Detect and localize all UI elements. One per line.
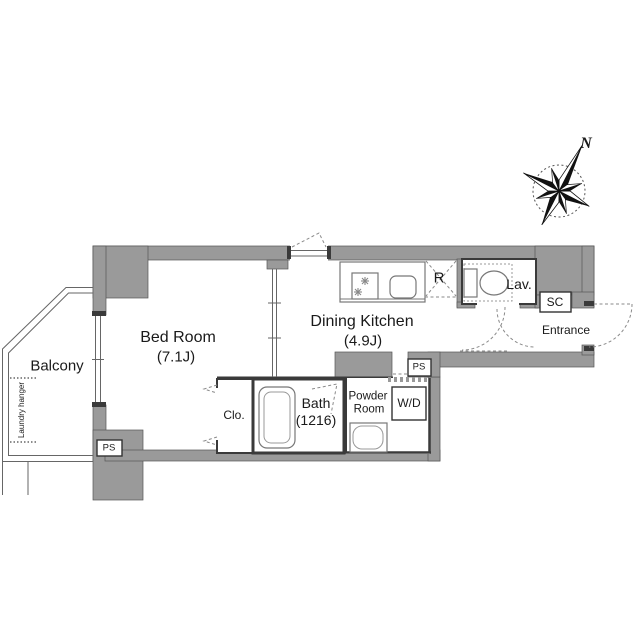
washbasin-icon [350,423,387,452]
entrance-label: Entrance [542,324,590,336]
lavatory-label: Lav. [506,277,531,291]
balcony-label: Balcony [30,359,83,374]
bath-size-label: (1216) [296,413,336,427]
closet-label: Clo. [223,409,244,421]
kitchen-counter [340,262,425,302]
bath-label: Bath [302,396,331,410]
shoe-cabinet-label: SC [547,296,564,308]
burner-icon [354,288,362,296]
sink-icon [390,276,416,298]
kitchen-window [287,233,331,261]
sliding-door [268,269,281,377]
pipe-space-label-right: PS [413,362,426,372]
laundry-hanger-label: Laundry hanger [18,382,26,438]
window-swing [292,233,326,247]
compass-rose [506,127,613,241]
pipe-space-label-left: PS [103,443,116,453]
hall-door-swings [460,307,535,351]
compass-major-points [506,127,613,241]
refrigerator-label: R [434,271,445,286]
burner-icon [361,277,369,285]
compass-north-label: N [580,136,592,152]
powder-room-label-line2: Room [354,404,385,416]
bedroom-label: Bed Room [140,330,216,346]
washer-dryer-label: W/D [397,397,420,409]
floorplan-canvas: Bed Room (7.1J) Dining Kitchen (4.9J) Ba… [0,0,639,640]
balcony-window [92,311,106,407]
stove-icon [352,273,378,299]
powder-room-label-line1: Powder [349,391,388,403]
entrance-door [584,301,632,351]
dining-kitchen-label: Dining Kitchen [310,314,413,330]
bedroom-size-label: (7.1J) [157,350,195,365]
dining-kitchen-size-label: (4.9J) [344,334,382,349]
